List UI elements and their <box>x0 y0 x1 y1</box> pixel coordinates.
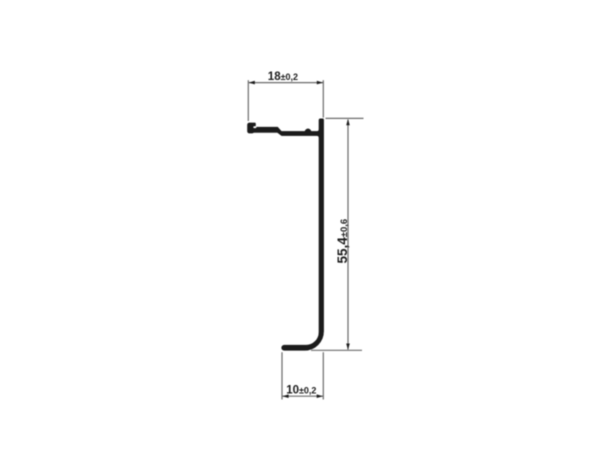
svg-text:10±0,2: 10±0,2 <box>286 384 316 396</box>
svg-text:55,4±0,6: 55,4±0,6 <box>335 219 350 264</box>
svg-text:18±0,2: 18±0,2 <box>268 71 298 83</box>
